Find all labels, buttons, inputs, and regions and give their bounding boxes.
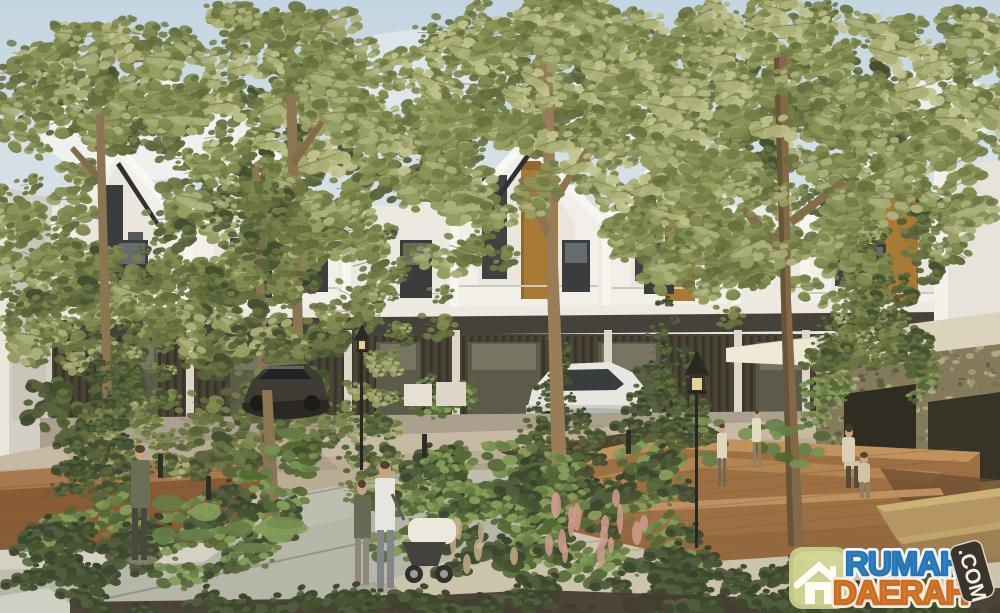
svg-text:DAERAH: DAERAH (833, 574, 968, 611)
